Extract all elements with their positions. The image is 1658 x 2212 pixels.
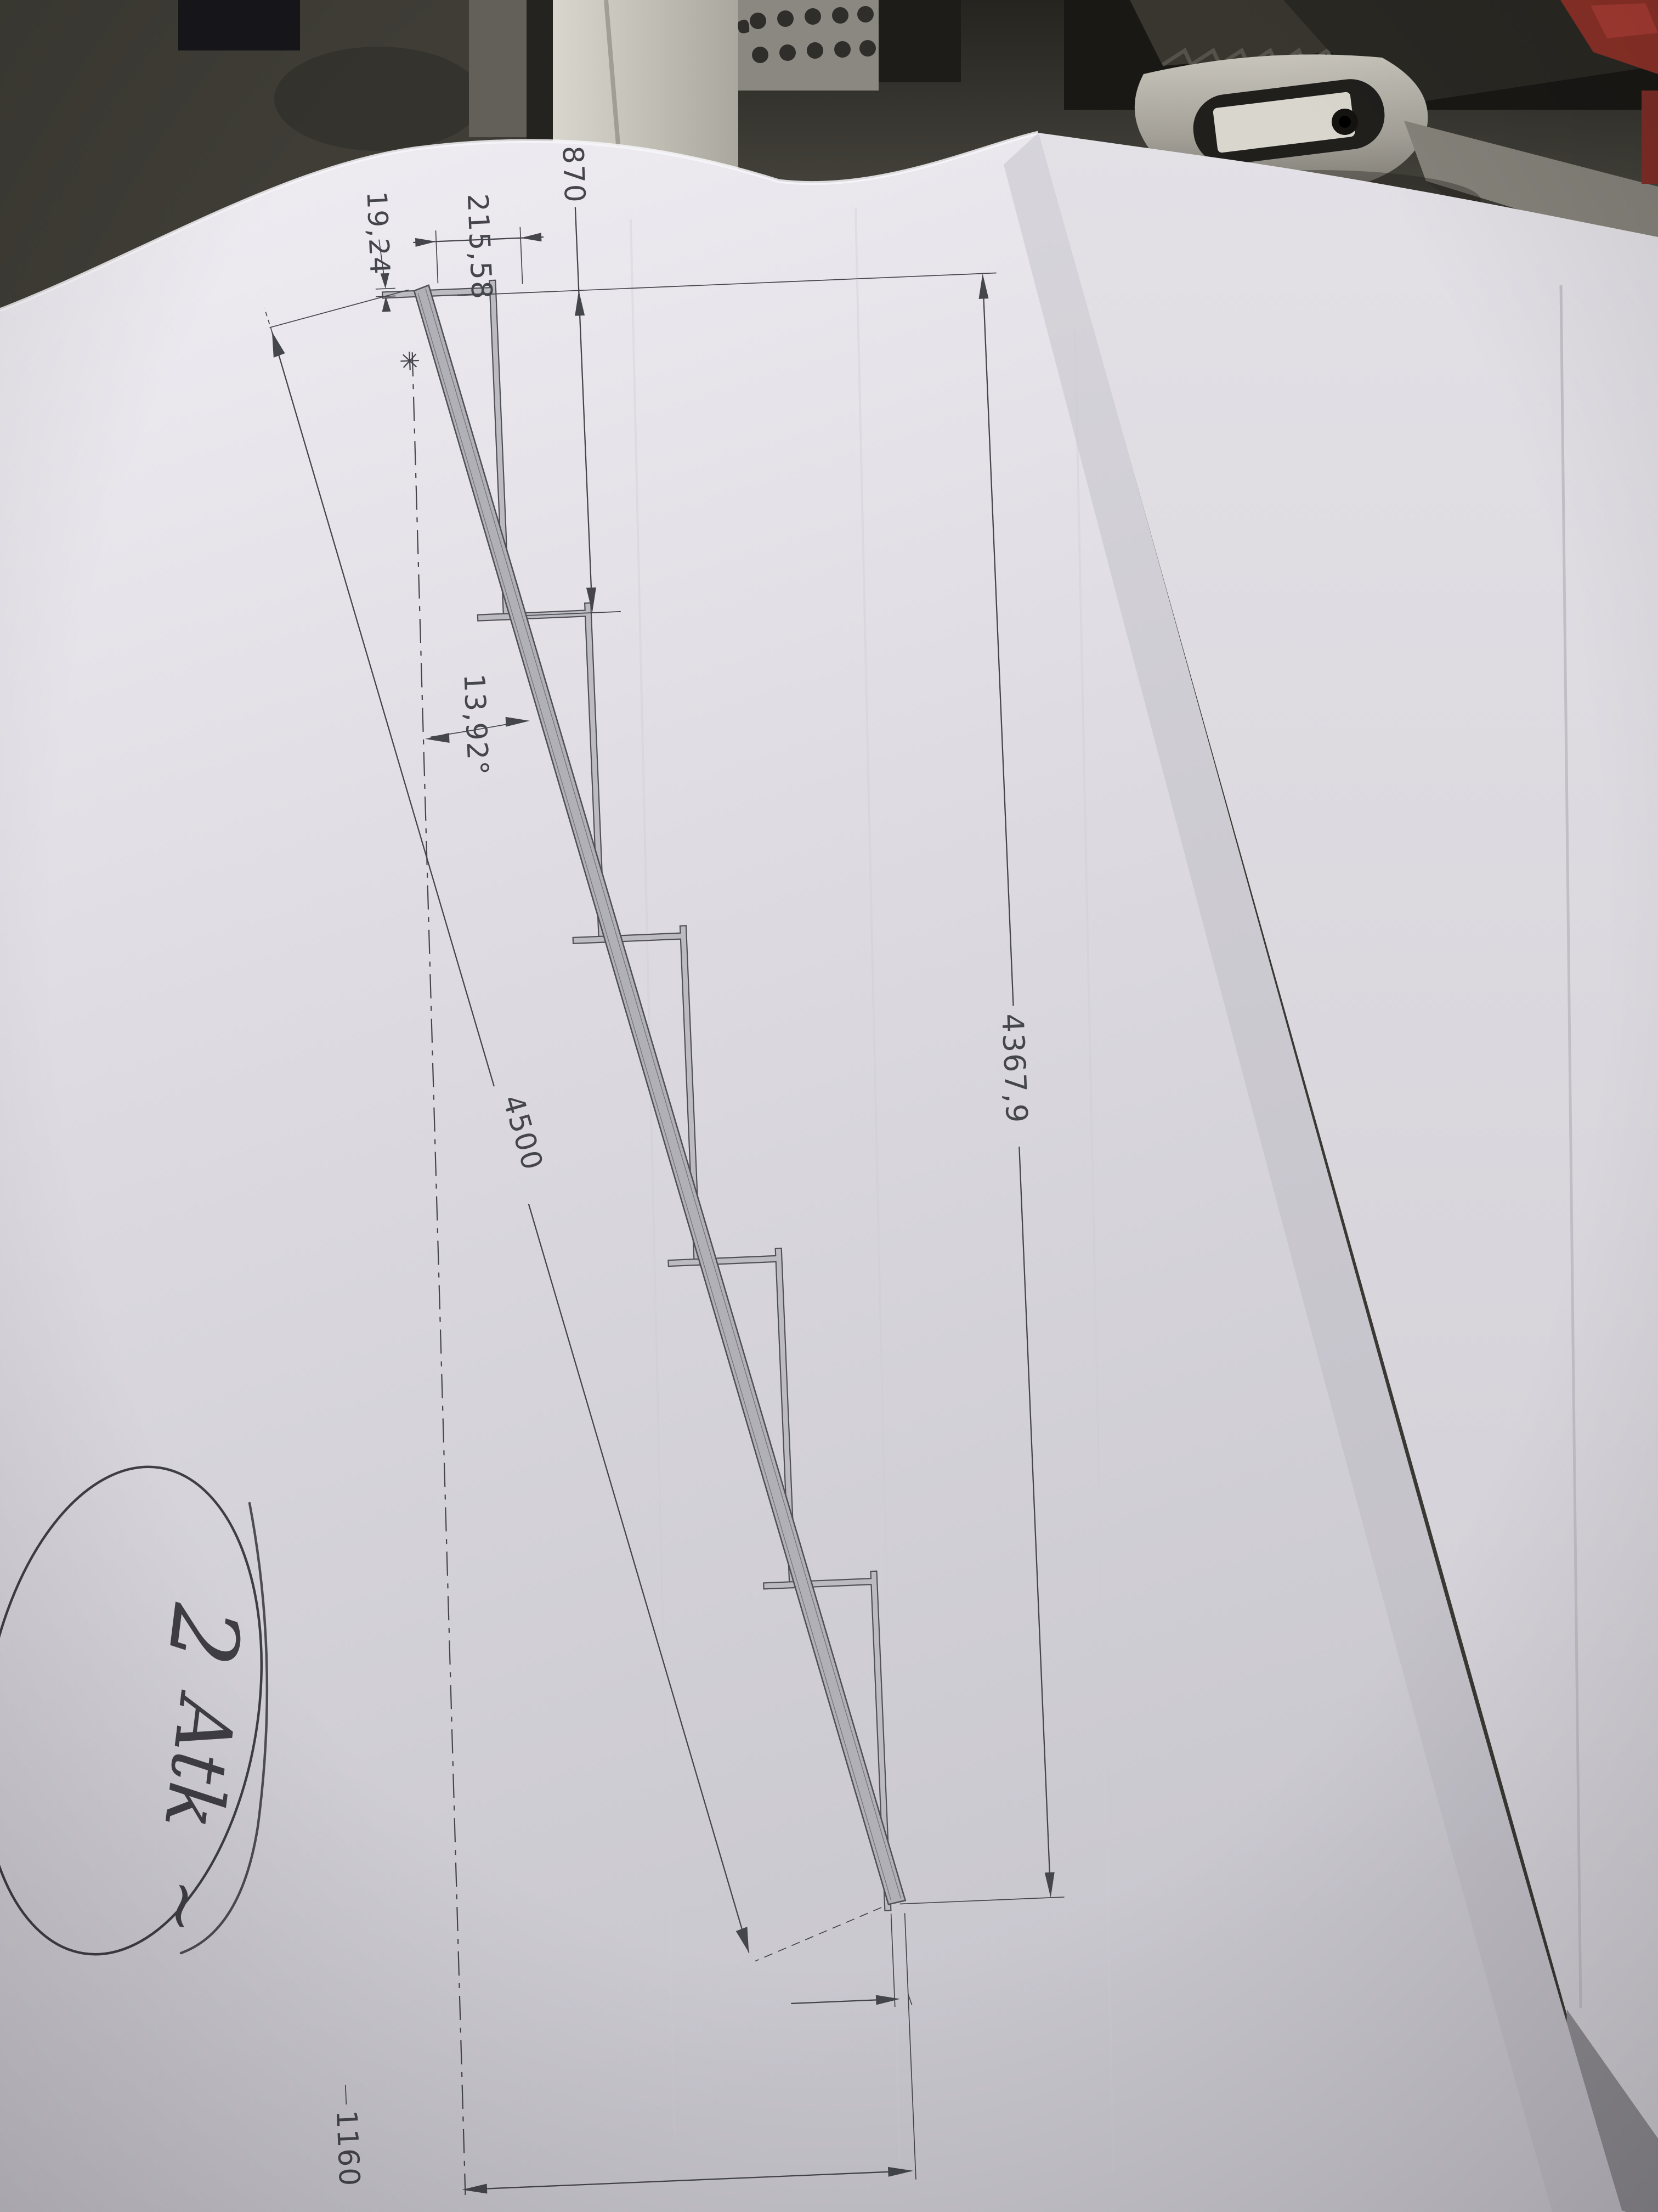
photo-vignette [0, 0, 1658, 2212]
photo-of-technical-drawing: 110 120 13 14 15 16 17 [0, 0, 1658, 2212]
